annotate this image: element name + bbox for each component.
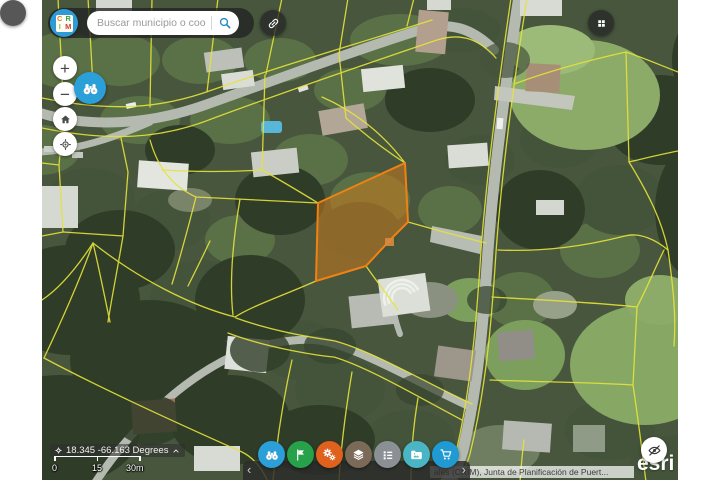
zoom-in-button[interactable]: +: [53, 56, 77, 80]
home-icon: [58, 112, 73, 127]
app-window: CR IM + − 18.345 -66.163 Degrees: [0, 0, 720, 480]
search-divider: [211, 16, 212, 30]
toolbar-button-layers[interactable]: [345, 441, 372, 468]
apps-grid-icon: [595, 17, 608, 30]
scale-label-15: 15: [92, 463, 102, 473]
cart-icon: [438, 447, 454, 463]
scale-tick: [97, 456, 99, 461]
search-marker-button[interactable]: [74, 72, 106, 104]
legend-icon: [380, 447, 396, 463]
scale-label-30m: 30m: [126, 463, 144, 473]
chevron-up-icon[interactable]: [171, 446, 181, 456]
search-field-wrap: [87, 11, 239, 35]
zoom-out-label: −: [60, 86, 70, 103]
toolbar-button-gallery[interactable]: [403, 441, 430, 468]
locate-icon: [58, 137, 73, 152]
crim-logo-letters: CR IM: [56, 15, 73, 32]
toolbar-button-cart[interactable]: [432, 441, 459, 468]
apps-grid-button[interactable]: [588, 10, 614, 36]
scale-label-0: 0: [52, 463, 57, 473]
coordinates-readout: 18.345 -66.163 Degrees: [66, 445, 168, 456]
toolbar-prev-button[interactable]: ‹: [247, 462, 251, 477]
scale-tick: [54, 456, 56, 461]
binoculars-icon: [264, 447, 280, 463]
toolbar-button-tools[interactable]: [316, 441, 343, 468]
toolbar-button-flag[interactable]: [287, 441, 314, 468]
gears-icon: [321, 446, 338, 463]
crim-logo[interactable]: CR IM: [50, 9, 78, 37]
toolbar-button-binoculars[interactable]: [258, 441, 285, 468]
link-icon: [266, 16, 281, 31]
toolbar-button-legend[interactable]: [374, 441, 401, 468]
search-icon[interactable]: [217, 15, 233, 31]
share-link-button[interactable]: [260, 10, 286, 36]
layers-icon: [350, 446, 367, 463]
eye-slash-icon: [646, 442, 663, 459]
basemap-apps-button[interactable]: [0, 0, 26, 26]
flag-icon: [293, 447, 309, 463]
hide-attribution-button[interactable]: [641, 437, 667, 463]
search-input[interactable]: [97, 17, 206, 29]
crosshair-icon: [54, 446, 63, 455]
toolbar-next-button[interactable]: ›: [462, 462, 466, 477]
binoculars-icon: [81, 79, 100, 98]
map-canvas[interactable]: [42, 0, 678, 480]
image-folder-icon: [408, 446, 425, 463]
aerial-imagery: [42, 0, 678, 480]
scale-tick: [139, 456, 141, 461]
locate-me-button[interactable]: [53, 132, 77, 156]
zoom-in-label: +: [60, 60, 70, 77]
home-extent-button[interactable]: [53, 107, 77, 131]
scale-bar: 0 15 30m: [54, 456, 150, 476]
